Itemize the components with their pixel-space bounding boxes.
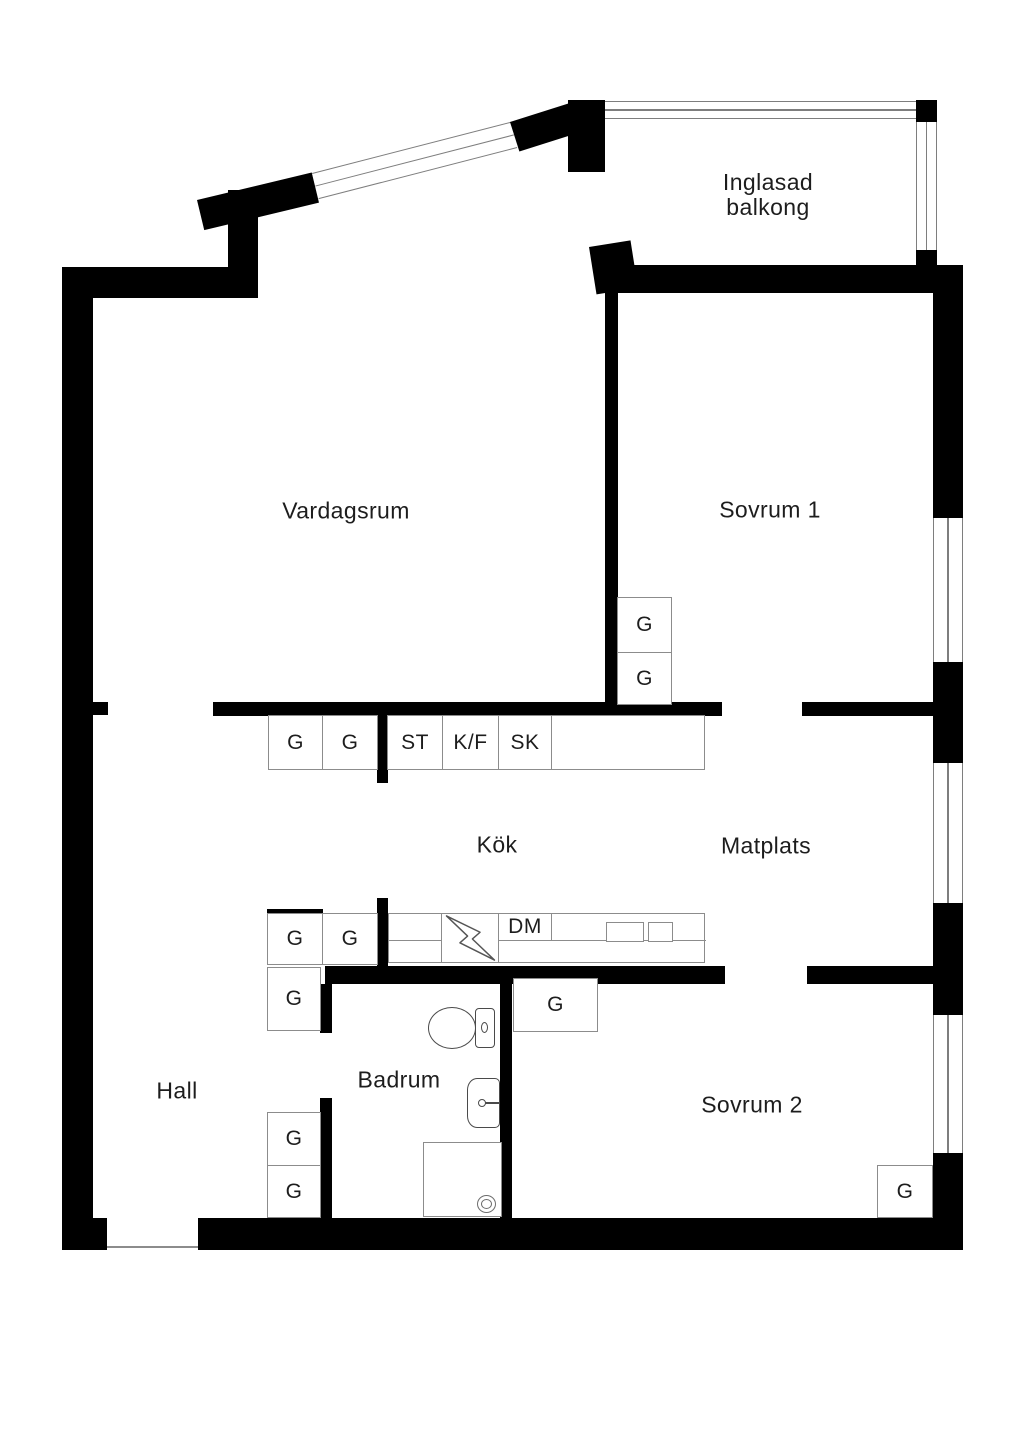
cabinet-wardrobe: G [267, 913, 323, 965]
balcony-window-top [605, 101, 918, 119]
wall-kitchen-north-right [802, 702, 933, 716]
counter-line [498, 940, 706, 941]
wall-bathroom-left-lower [320, 1098, 332, 1218]
dishwasher-cell: DM [499, 914, 551, 940]
cabinet-unlabeled [551, 715, 705, 770]
cabinet-label: G [342, 731, 359, 755]
kitchen-counter: DM [388, 913, 705, 963]
cabinet-label: G [342, 927, 359, 951]
closet-bedroom2-entry: G [513, 978, 598, 1032]
wall-balcony-door-corner [589, 240, 638, 294]
washbasin-faucet-knob [478, 1099, 486, 1107]
balcony-window-right [916, 122, 937, 250]
bedroom2-label: Sovrum 2 [701, 1093, 803, 1118]
cabinet-label: G [636, 613, 653, 637]
cabinet-label: G [286, 1127, 303, 1151]
closet-hall-top: G [267, 967, 321, 1031]
toilet-icon [428, 1006, 496, 1050]
dishwasher-label: DM [508, 915, 542, 939]
wall-kitchen-south-right [807, 966, 933, 984]
living-room-diagonal-window [312, 122, 517, 199]
counter-line [389, 940, 441, 941]
cabinet-label: G [287, 731, 304, 755]
cabinet-label: K/F [453, 731, 487, 755]
wall-balcony-left [568, 100, 605, 172]
closet-bedroom1: G [617, 652, 672, 705]
shower-drain-inner [481, 1199, 492, 1209]
dining-label: Matplats [721, 834, 811, 859]
toilet-bowl [428, 1007, 476, 1049]
wall-outer-top-left [62, 267, 258, 298]
cabinet-pantry: SK [498, 715, 552, 770]
cabinet-label: G [897, 1180, 914, 1204]
closet-hall: G [267, 1112, 321, 1166]
wall-kitchen-lower-stub [377, 898, 388, 968]
kitchen-label: Kök [477, 833, 518, 858]
cabinet-label: SK [510, 731, 539, 755]
wall-bathroom-left-upper [320, 984, 332, 1033]
cabinet-label: G [286, 987, 303, 1011]
cabinet-label: G [287, 927, 304, 951]
cabinet-label: G [286, 1180, 303, 1204]
entrance-threshold [107, 1246, 198, 1248]
floor-plan: G G ST K/F SK G G G G DM G G G G G [0, 0, 1024, 1448]
wall-outer-bottom [198, 1218, 963, 1250]
kitchen-sink-icon [648, 922, 673, 942]
closet-bedroom2-corner: G [877, 1165, 933, 1218]
cabinet-wardrobe: G [322, 715, 378, 770]
cabinet-wardrobe: G [268, 715, 323, 770]
stove-lightning-icon [442, 914, 498, 962]
cabinet-fridge-freezer: K/F [442, 715, 499, 770]
cabinet-wardrobe: G [322, 913, 378, 965]
balcony-label-line1: Inglasad [723, 170, 813, 195]
wall-kitchen-north-stub [93, 702, 108, 715]
counter-divider [551, 914, 552, 940]
washbasin-icon [467, 1078, 500, 1128]
cabinet-label: G [547, 993, 564, 1017]
closet-bedroom1: G [617, 597, 672, 653]
bedroom2-window [933, 1015, 963, 1153]
balcony-label: Inglasad balkong [723, 170, 813, 220]
wall-balcony-corner-ne [916, 100, 937, 122]
wall-outer-left [62, 267, 93, 1250]
bathroom-label: Badrum [358, 1068, 441, 1093]
wall-top-bedroom1 [600, 265, 963, 293]
shower-drain-icon [477, 1195, 496, 1213]
dining-window [933, 763, 963, 903]
toilet-flush-button [481, 1022, 488, 1033]
living-room-label: Vardagsrum [282, 499, 410, 524]
bedroom1-label: Sovrum 1 [719, 498, 821, 523]
cabinet-label: ST [401, 731, 429, 755]
kitchen-sink-icon [606, 922, 644, 942]
cabinet-cleaning: ST [387, 715, 443, 770]
shower-area [423, 1142, 502, 1217]
bedroom1-window [933, 518, 963, 662]
wall-outer-bottom-left [62, 1218, 107, 1250]
cabinet-label: G [636, 667, 653, 691]
balcony-label-line2: balkong [723, 195, 813, 220]
hall-label: Hall [156, 1079, 197, 1104]
closet-hall: G [267, 1165, 321, 1218]
